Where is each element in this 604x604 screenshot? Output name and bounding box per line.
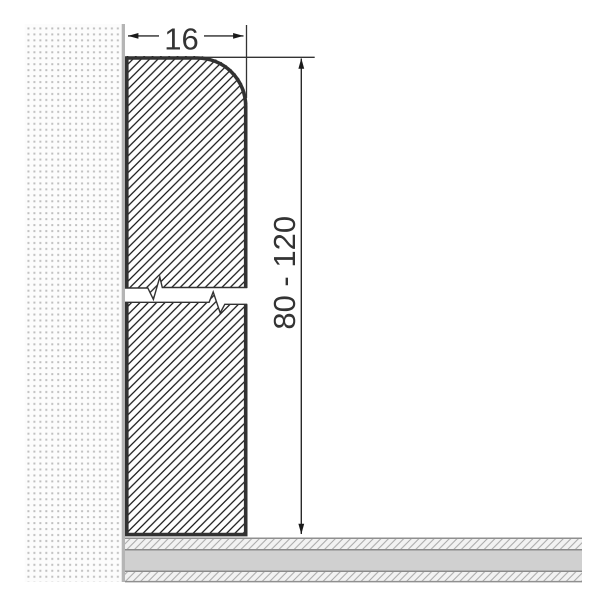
svg-text:80 - 120: 80 - 120 bbox=[267, 216, 302, 330]
svg-text:16: 16 bbox=[164, 22, 198, 57]
